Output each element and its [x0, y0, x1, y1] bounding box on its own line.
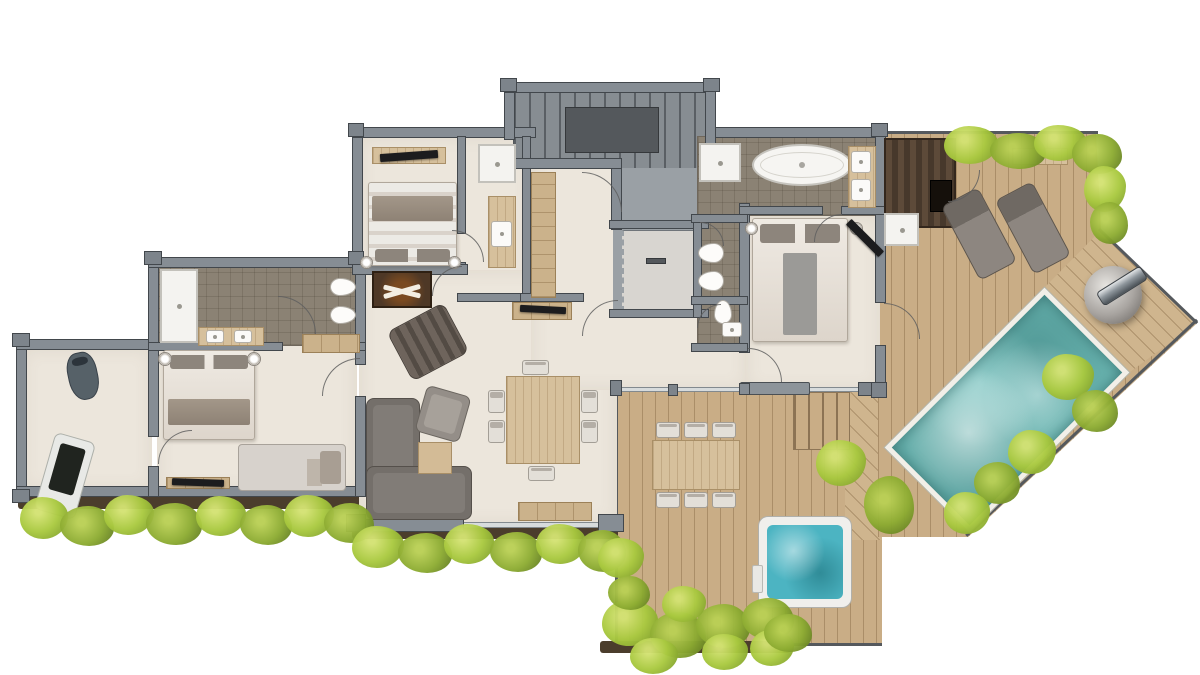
outdoor-chair — [656, 492, 680, 508]
wall — [16, 339, 27, 497]
bush — [944, 492, 990, 534]
outdoor-chair — [712, 492, 736, 508]
bed-2 — [163, 350, 255, 440]
fireplace — [372, 271, 432, 308]
pillar — [871, 382, 887, 398]
sofa-corner-short — [366, 466, 472, 520]
bush — [608, 576, 650, 610]
pillar — [144, 251, 162, 265]
dining-table — [506, 376, 580, 464]
lamp — [745, 222, 758, 235]
dining-chair — [522, 360, 549, 375]
bush — [490, 532, 542, 572]
sink — [234, 330, 252, 343]
shower-master — [699, 143, 741, 182]
shower-ensuite3 — [478, 144, 516, 183]
sink — [722, 322, 742, 337]
bush — [352, 526, 404, 568]
outdoor-chair — [712, 422, 736, 438]
lamp — [158, 352, 172, 366]
sliding-door — [740, 382, 810, 395]
coffee-table — [418, 442, 452, 474]
daybed — [238, 444, 346, 491]
wall — [739, 383, 750, 395]
dining-chair — [581, 390, 598, 413]
glass-wall-a — [614, 387, 744, 392]
bush — [196, 496, 246, 536]
wall — [355, 396, 366, 497]
bed-3 — [368, 182, 457, 266]
outdoor-shower-tray — [884, 213, 919, 246]
stairs-mid-flight — [565, 107, 659, 153]
outdoor-chair — [684, 422, 708, 438]
hot-tub — [758, 516, 852, 608]
wall — [504, 82, 716, 93]
elevator-cab — [622, 230, 700, 312]
elevator-handle — [646, 258, 666, 264]
sink — [851, 179, 871, 201]
dining-chair — [528, 466, 555, 481]
floor-plan — [0, 0, 1200, 675]
wall — [504, 158, 622, 169]
pillar — [858, 382, 872, 396]
wardrobe-hall — [531, 172, 556, 298]
bush — [764, 614, 812, 652]
pillar — [12, 333, 30, 347]
pillar — [610, 380, 622, 396]
wall — [739, 206, 823, 215]
dining-chair — [488, 390, 505, 413]
outdoor-chair — [656, 422, 680, 438]
pillar — [871, 123, 888, 137]
dining-chair — [488, 420, 505, 443]
wall — [148, 257, 366, 268]
wall — [457, 136, 466, 234]
wall — [457, 293, 522, 302]
wall — [709, 127, 886, 138]
sink — [851, 151, 871, 173]
dining-chair — [581, 420, 598, 443]
pillar — [668, 384, 678, 396]
outdoor-dining-table — [652, 440, 740, 490]
lamp — [247, 352, 261, 366]
bush — [1008, 430, 1056, 474]
pillar — [348, 123, 364, 137]
sink — [206, 330, 224, 343]
shower-bath2 — [160, 269, 198, 343]
bathtub — [752, 144, 852, 186]
bush — [630, 638, 678, 674]
pillar — [703, 78, 720, 92]
outdoor-chair — [684, 492, 708, 508]
bush — [1072, 390, 1118, 432]
wall — [148, 257, 159, 347]
lamp — [360, 256, 373, 269]
bush — [864, 476, 914, 534]
sink — [491, 221, 512, 247]
pillar — [500, 78, 517, 92]
bush — [702, 634, 748, 670]
bush — [1090, 202, 1128, 244]
bidet — [698, 271, 724, 291]
bush — [146, 503, 202, 545]
wall — [691, 343, 748, 352]
sideboard-living — [518, 502, 592, 521]
toilet — [698, 243, 724, 263]
wall — [148, 339, 159, 437]
wall — [148, 466, 159, 497]
wall — [16, 339, 159, 350]
wardrobe-2 — [302, 334, 360, 353]
bush — [444, 524, 494, 564]
